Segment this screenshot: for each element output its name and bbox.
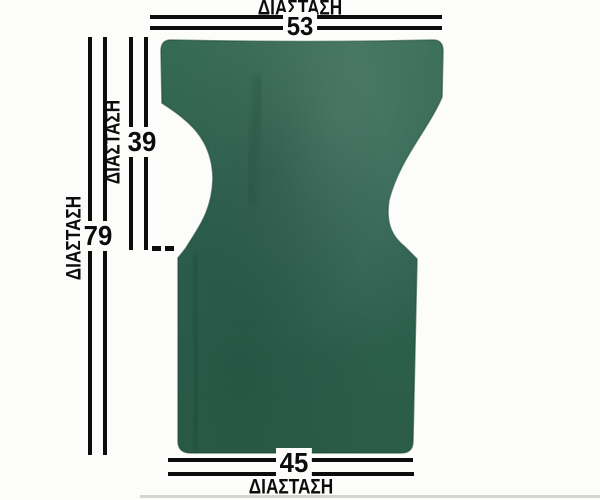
- dashed-tick-1: [152, 246, 161, 251]
- photo-edge-strip: [140, 495, 600, 498]
- dimension-value-top-width: 53: [283, 12, 317, 40]
- dimension-value-total-height: 79: [80, 221, 116, 251]
- product-dimension-diagram: ΔΙΑΣΤΑΣΗ 53 ΔΙΑΣΤΑΣΗ 79 ΔΙΑΣΤΑΣΗ 39 45 Δ…: [0, 0, 600, 500]
- dashed-tick-2: [165, 246, 174, 251]
- dimension-label-inner-left: ΔΙΑΣΤΑΣΗ: [103, 100, 124, 184]
- dimension-value-bottom-width: 45: [276, 448, 312, 478]
- fabric-shadow-bottom: [161, 40, 443, 453]
- dimension-value-upper-height: 39: [124, 127, 160, 157]
